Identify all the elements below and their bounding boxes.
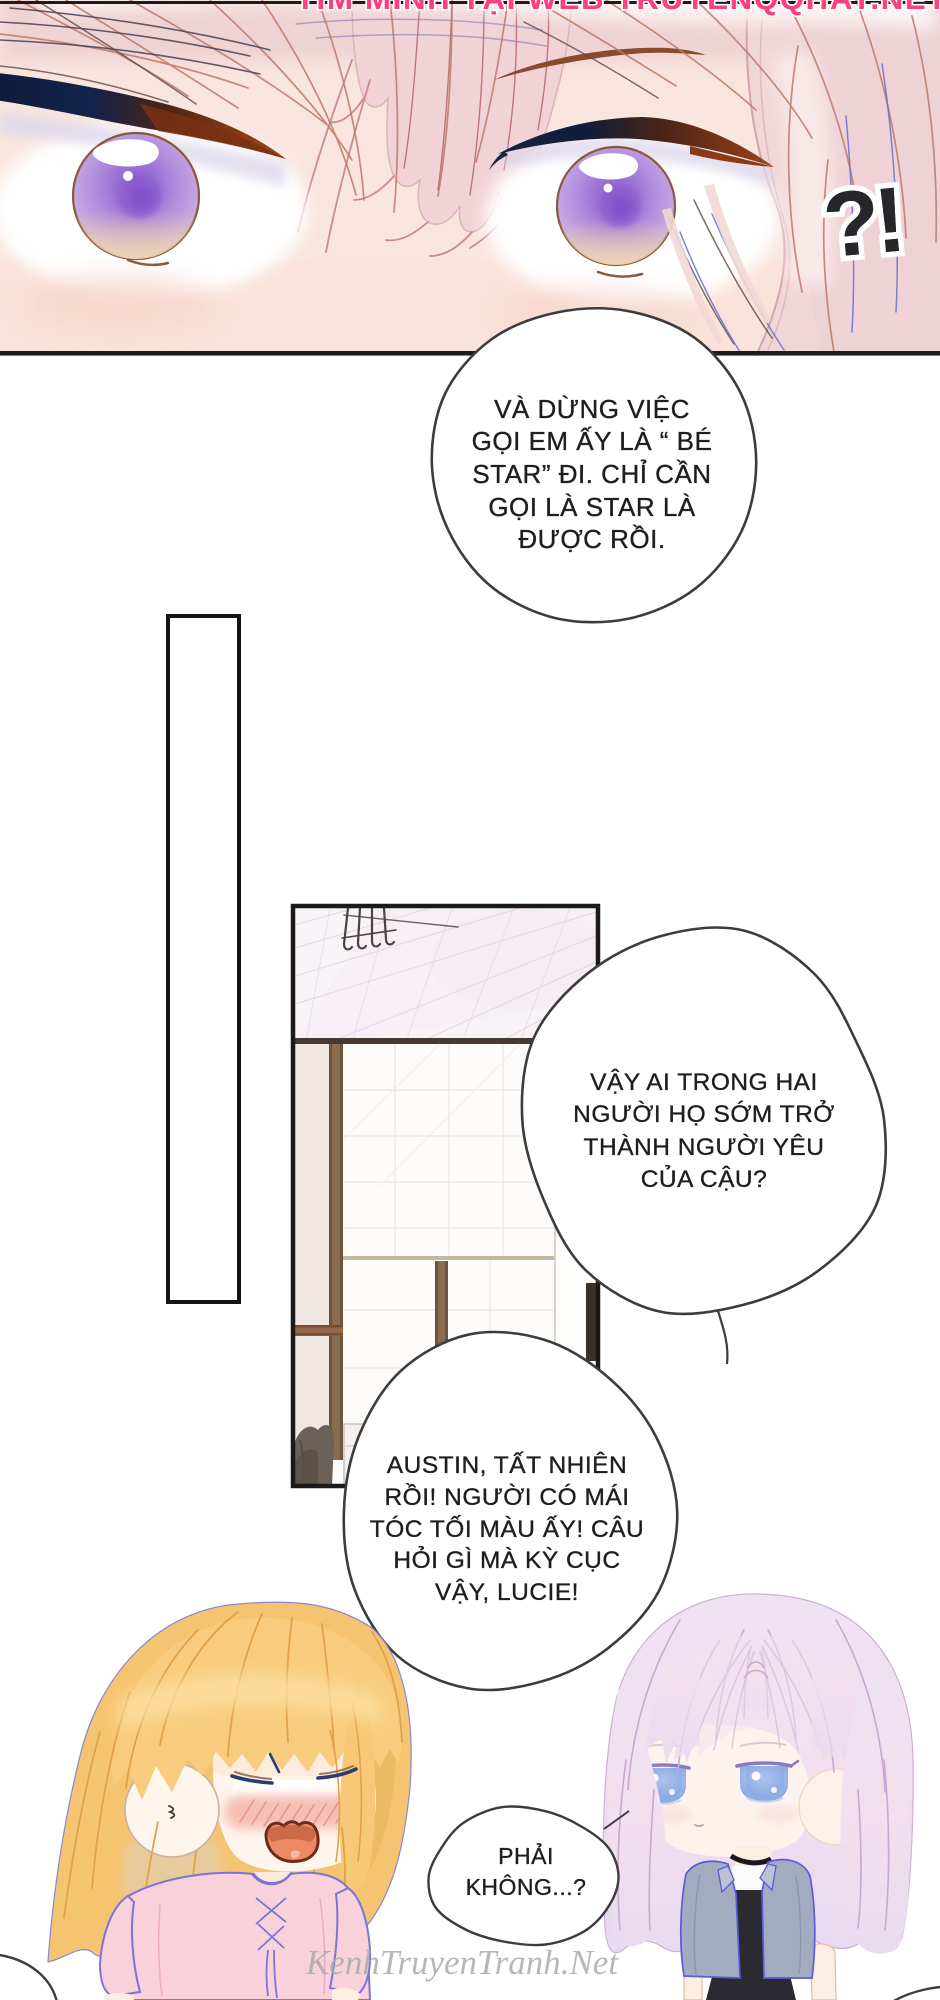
svg-text:CỦA CẬU?: CỦA CẬU? <box>641 1164 768 1193</box>
svg-text:NGƯỜI HỌ SỚM TRỞ: NGƯỜI HỌ SỚM TRỞ <box>573 1099 835 1128</box>
svg-text:TÓC TỐI MÀU ẤY! CÂU: TÓC TỐI MÀU ẤY! CÂU <box>370 1515 645 1543</box>
svg-text:HỎI GÌ MÀ KỲ CỤC: HỎI GÌ MÀ KỲ CỤC <box>393 1545 620 1574</box>
svg-text:PHẢI: PHẢI <box>498 1841 554 1869</box>
svg-text:RỒI! NGƯỜI CÓ MÁI: RỒI! NGƯỜI CÓ MÁI <box>384 1483 629 1511</box>
svg-text:GỌI EM ẤY LÀ “ BÉ: GỌI EM ẤY LÀ “ BÉ <box>472 426 713 456</box>
svg-text:VÀ DỪNG VIỆC: VÀ DỪNG VIỆC <box>494 394 690 424</box>
svg-text:TÌM MÌNH TẠI WEB TRUYENQQHAY.N: TÌM MÌNH TẠI WEB TRUYENQQHAY.NET <box>296 0 940 16</box>
svg-text:THÀNH NGƯỜI YÊU: THÀNH NGƯỜI YÊU <box>584 1134 825 1161</box>
svg-text:KHÔNG...?: KHÔNG...? <box>466 1873 587 1900</box>
svg-text:GỌI LÀ STAR LÀ: GỌI LÀ STAR LÀ <box>488 492 696 522</box>
svg-text:KenhTruyenTranh.Net: KenhTruyenTranh.Net <box>305 1943 619 1982</box>
svg-text:AUSTIN, TẤT NHIÊN: AUSTIN, TẤT NHIÊN <box>387 1451 627 1479</box>
svg-text:VẬY, LUCIE!: VẬY, LUCIE! <box>435 1579 579 1606</box>
svg-text:STAR” ĐI. CHỈ CẦN: STAR” ĐI. CHỈ CẦN <box>472 459 711 489</box>
svg-text:?!: ?! <box>819 169 904 277</box>
svg-text:ĐƯỢC RỒI.: ĐƯỢC RỒI. <box>518 524 665 554</box>
svg-text:VẬY AI TRONG HAI: VẬY AI TRONG HAI <box>590 1069 818 1096</box>
